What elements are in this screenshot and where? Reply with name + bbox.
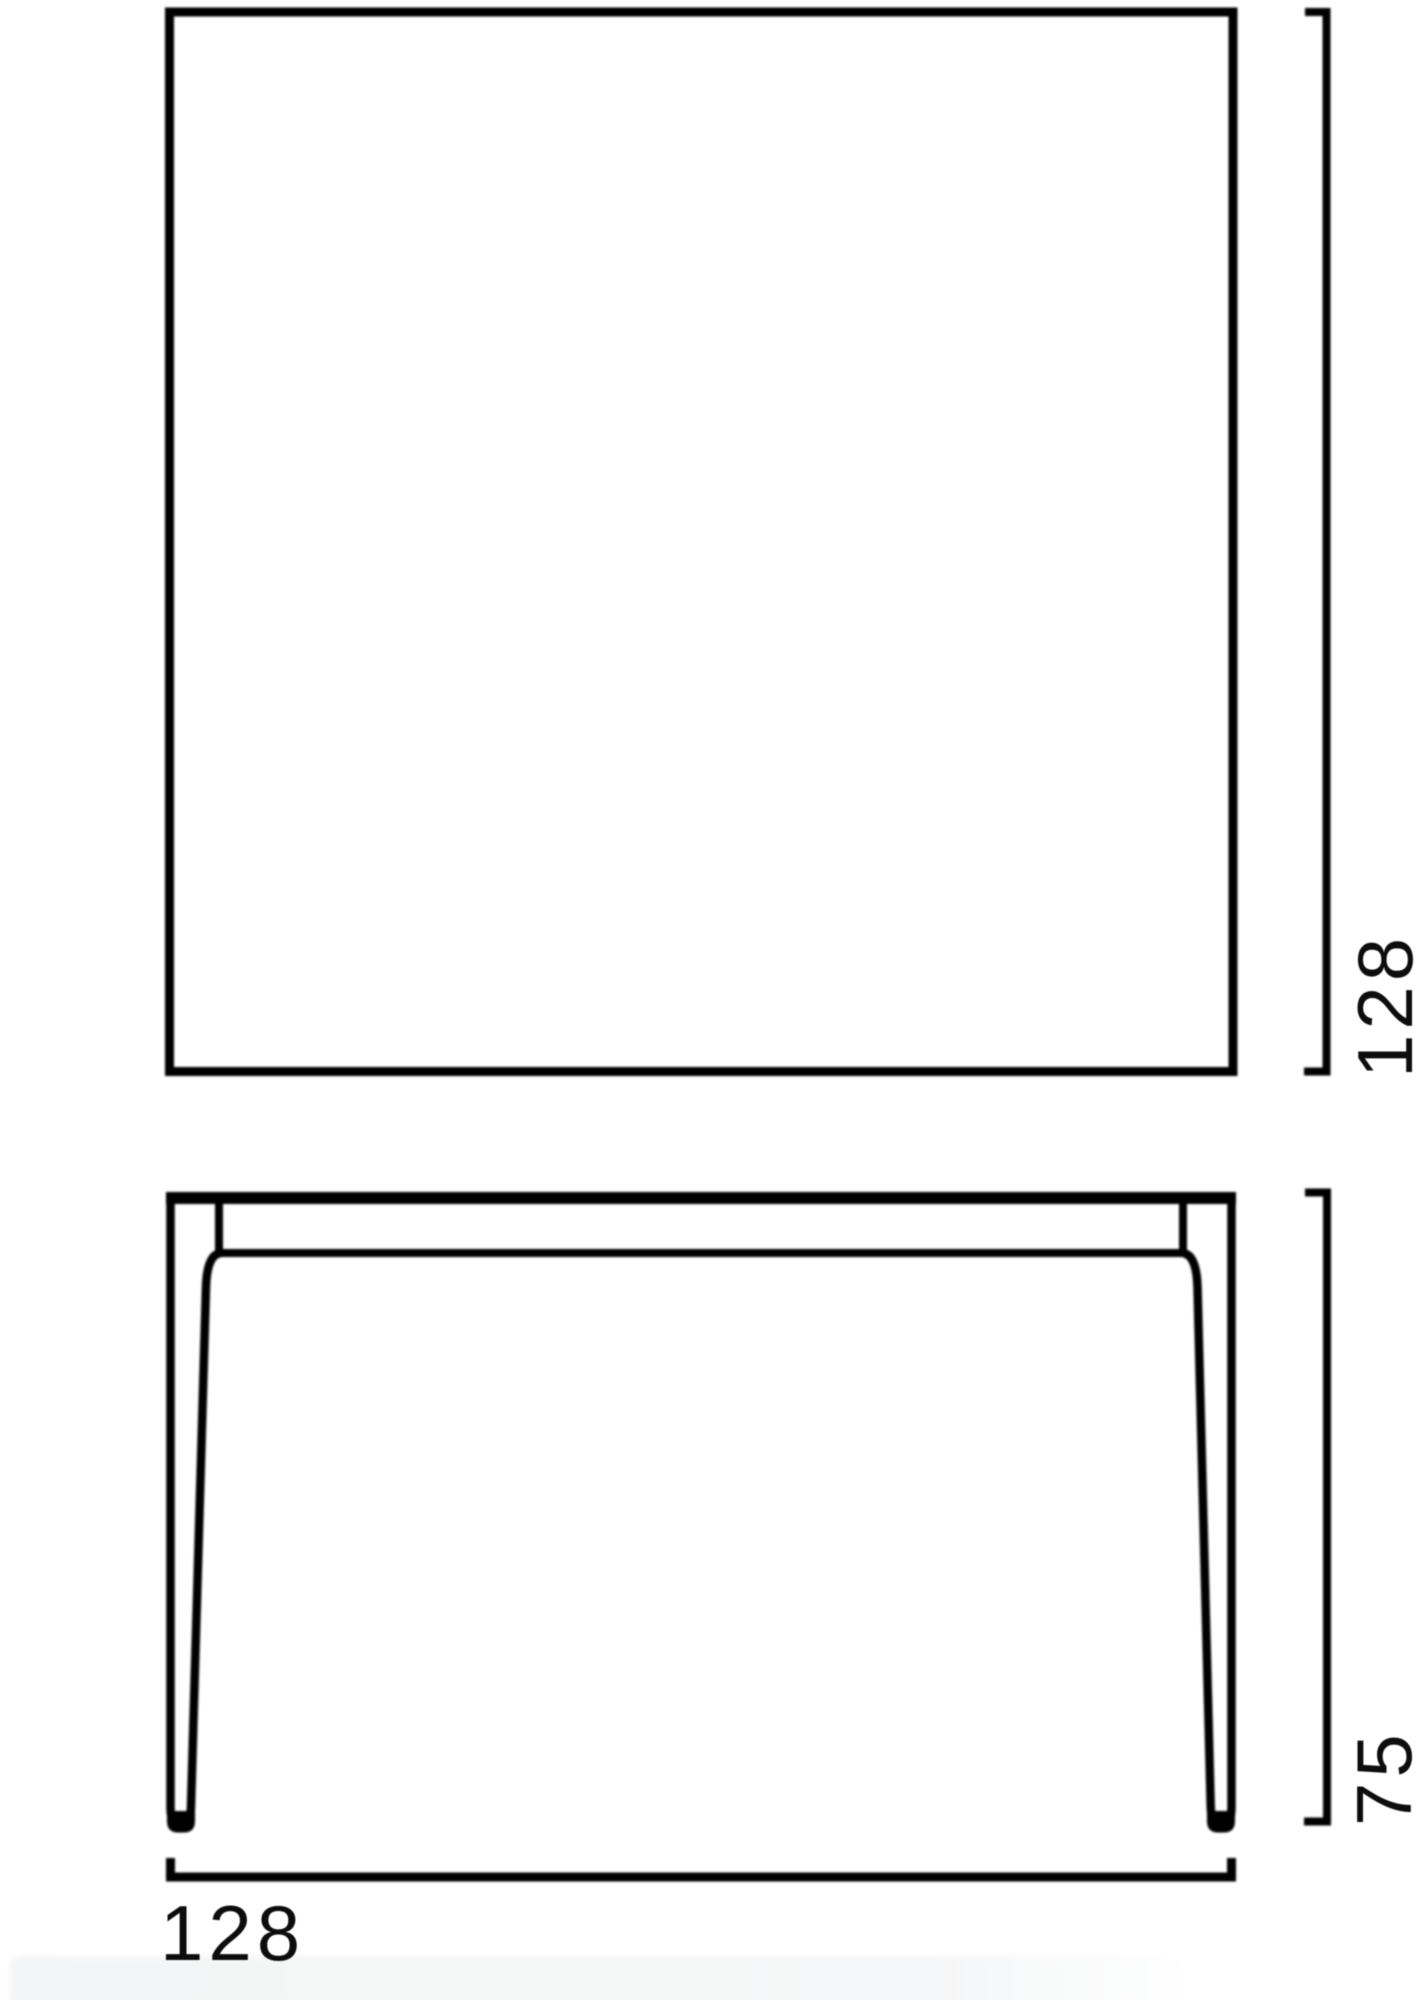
- svg-text:128: 128: [160, 1889, 305, 1977]
- svg-text:75: 75: [1340, 1729, 1424, 1826]
- svg-text:128: 128: [1341, 933, 1424, 1078]
